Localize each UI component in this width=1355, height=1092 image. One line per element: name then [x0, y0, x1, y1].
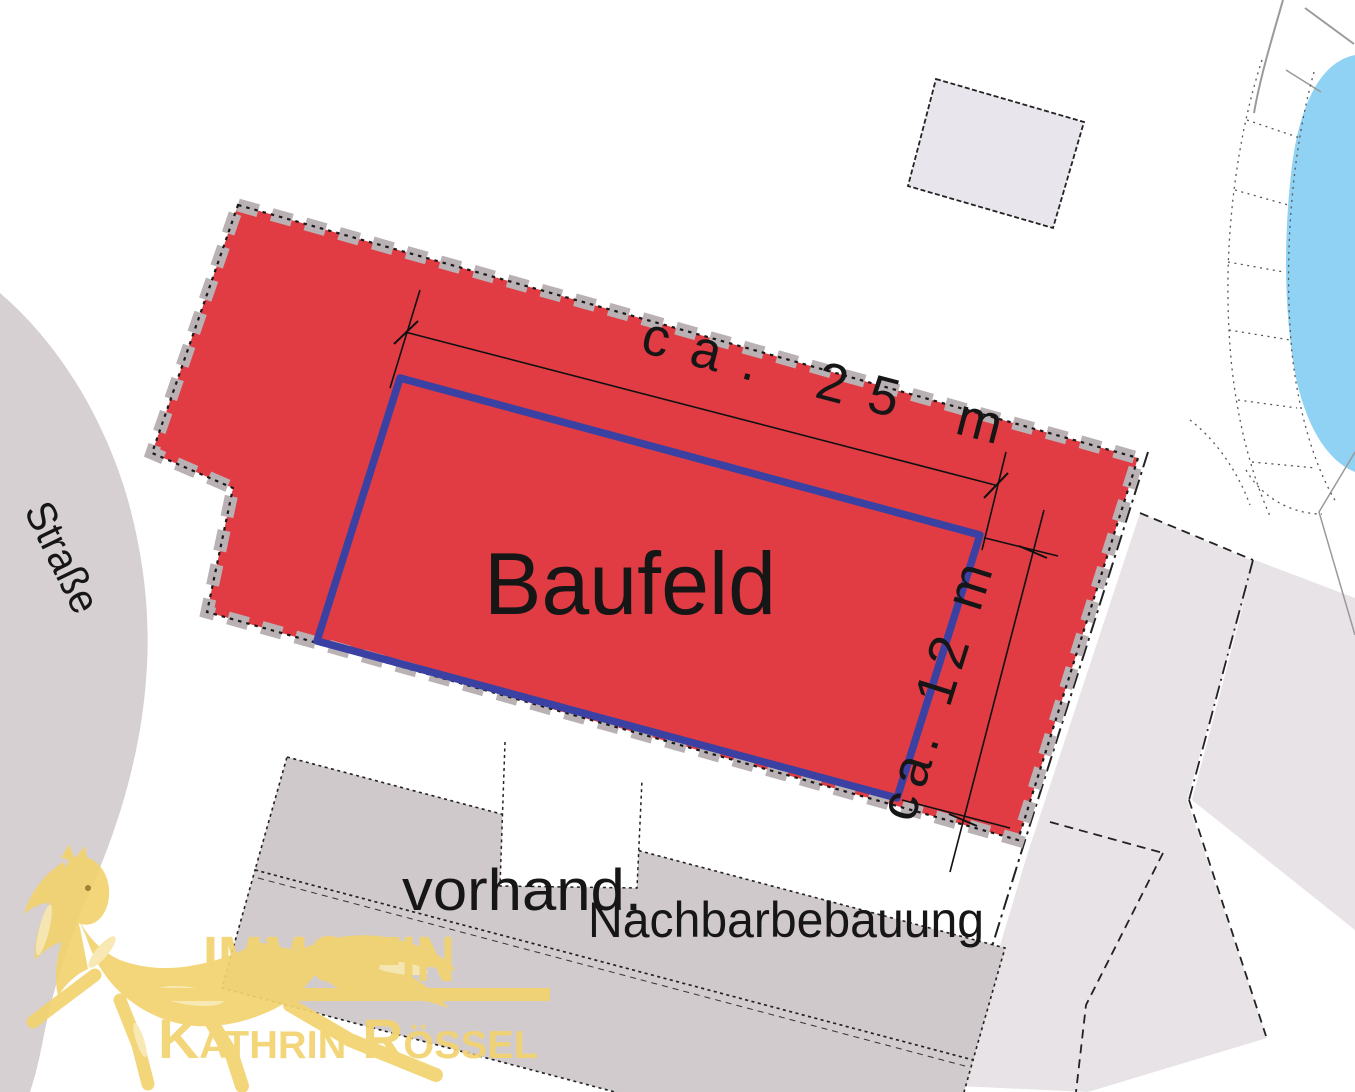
site-plan: Straße Baufeld ca. 25 m ca. 12 m vorhand…: [0, 0, 1355, 1092]
building-field-plot: [152, 205, 1138, 840]
slope-hatch-tick: [1228, 262, 1284, 272]
baufeld-area: [152, 205, 1138, 840]
neighbor-label-line2: Nachbarbebauung: [588, 892, 984, 948]
watermark-divider-bar: [150, 988, 550, 1001]
terrain-arc-top: [1254, 0, 1283, 113]
terrain-line-short: [1286, 70, 1321, 92]
site-plan-page: Straße Baufeld ca. 25 m ca. 12 m vorhand…: [0, 0, 1355, 1092]
slope-hatch-tick: [1229, 330, 1290, 340]
slope-hatch-tick: [1252, 462, 1316, 468]
slope-hatch-outer-curve: [1228, 60, 1270, 516]
pond-area: [1286, 55, 1355, 472]
slope-hatch-tick: [1247, 120, 1300, 138]
slope-hatch-tail-curve: [1246, 470, 1322, 514]
watermark-person: Kathrin Rössel: [158, 1007, 538, 1070]
terrain-line-top-right: [1305, 8, 1354, 44]
slope-hatch-foot-curve: [1190, 420, 1250, 505]
outbuilding-square: [908, 79, 1084, 228]
slope-hatch-tick: [1235, 190, 1288, 205]
building-field-label: Baufeld: [484, 534, 776, 633]
horse-eye: [85, 885, 91, 891]
watermark-company: IMMO-FIN: [203, 923, 455, 995]
slope-hatch-tick: [1238, 400, 1297, 408]
